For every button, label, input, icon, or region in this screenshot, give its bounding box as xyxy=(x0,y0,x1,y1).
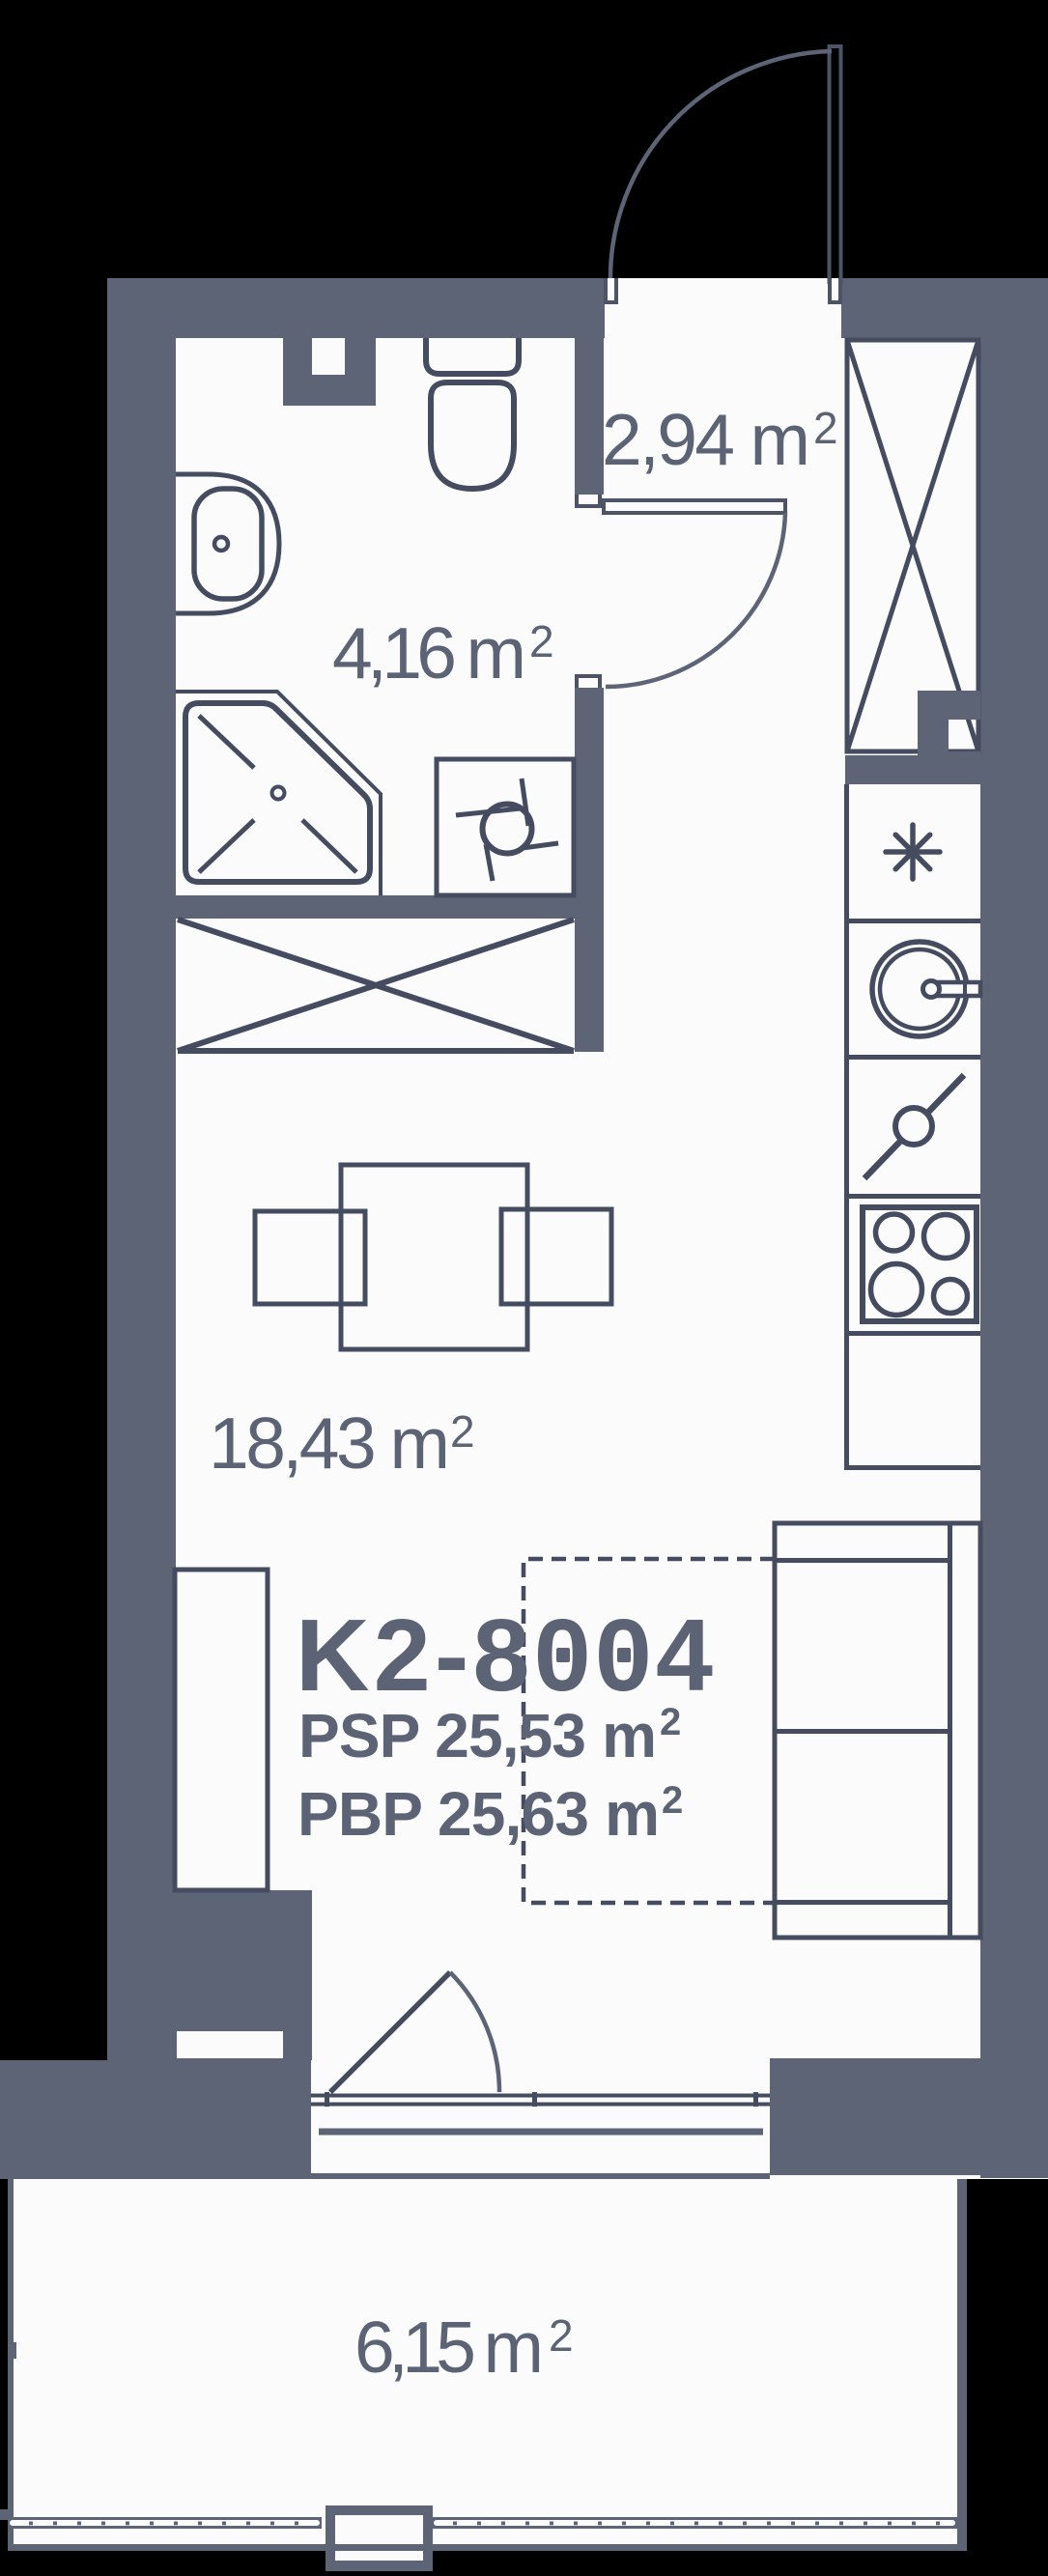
svg-text:18,43 m: 18,43 m xyxy=(209,1402,450,1484)
svg-text:2: 2 xyxy=(662,1779,683,1822)
svg-text:2: 2 xyxy=(660,1701,681,1743)
svg-text:2: 2 xyxy=(813,403,838,453)
svg-text:K2-8004: K2-8004 xyxy=(296,1599,713,1713)
svg-text:PSP 25,53 m: PSP 25,53 m xyxy=(298,1701,657,1770)
svg-text:6,15 m: 6,15 m xyxy=(354,2307,544,2388)
svg-text:2: 2 xyxy=(529,616,554,666)
svg-text:2,94 m: 2,94 m xyxy=(602,399,810,480)
svg-text:2: 2 xyxy=(549,2310,574,2361)
svg-text:4,16 m: 4,16 m xyxy=(332,612,526,694)
svg-text:PBP 25,63 m: PBP 25,63 m xyxy=(297,1779,660,1849)
svg-text:2: 2 xyxy=(450,1406,475,1457)
